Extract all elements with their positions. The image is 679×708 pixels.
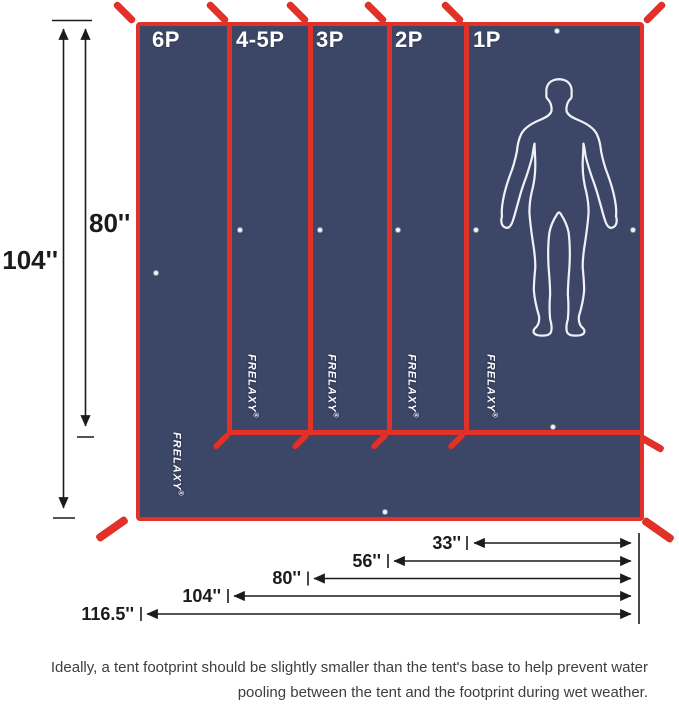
dim-label-width-104: 104'' [150,586,221,606]
brand-name: FRELAXY [171,432,183,490]
grommet-icon [550,424,556,430]
tie-strap-icon [205,0,229,24]
panel-divider [227,24,232,432]
grommet-icon [317,227,323,233]
brand-name: FRELAXY [246,354,258,412]
tie-strap-icon [112,0,136,24]
brand-logo: FRELAXY® [406,349,419,423]
caption: Ideally, a tent footprint should be slig… [40,655,648,705]
tie-strap-icon [641,516,675,543]
grommet-icon [473,227,479,233]
tie-strap-icon [363,0,387,24]
caption-line-1: Ideally, a tent footprint should be slig… [40,655,648,680]
tie-strap-icon [285,0,309,24]
brand-name: FRELAXY [406,354,418,412]
registered-mark: ® [331,412,338,418]
dim-label-width-56: 56'' [310,551,381,571]
registered-mark: ® [411,412,418,418]
brand-logo: FRELAXY® [246,349,259,423]
tie-strap-icon [440,0,464,24]
panel-label-4-5p: 4-5P [236,28,284,52]
grommet-icon [153,270,159,276]
grommet-icon [395,227,401,233]
tie-strap-icon [95,515,129,542]
panel-label-2p: 2P [395,28,423,52]
tie-strap-icon [642,0,666,24]
registered-mark: ® [490,412,497,418]
panel-label-6p: 6P [152,28,180,52]
panel-divider [387,24,392,432]
brand-logo: FRELAXY® [326,349,339,423]
registered-mark: ® [176,490,183,496]
dim-label-width-116-5: 116.5'' [40,604,134,624]
registered-mark: ® [251,412,258,418]
caption-line-2: pooling between the tent and the footpri… [40,680,648,705]
panel-label-1p: 1P [473,28,501,52]
panel-label-3p: 3P [316,28,344,52]
dim-label-width-33: 33'' [390,533,461,553]
dim-label-height-80: 80'' [89,209,130,237]
dim-label-height-104: 104'' [0,246,58,274]
brand-logo: FRELAXY® [485,349,498,423]
grommet-icon [237,227,243,233]
panel-divider [308,24,313,432]
panel-bottom-edge [227,430,644,435]
panel-divider [464,24,469,432]
human-silhouette-icon [485,62,633,360]
dim-label-width-80: 80'' [230,568,301,588]
brand-logo: FRELAXY® [171,427,184,501]
grommet-icon [554,28,560,34]
brand-name: FRELAXY [326,354,338,412]
tent-footprint-size-diagram: 6P 4-5P 3P 2P 1P FRELAXY® FRELAXY® FRELA… [0,0,679,708]
grommet-icon [382,509,388,515]
brand-name: FRELAXY [485,354,497,412]
